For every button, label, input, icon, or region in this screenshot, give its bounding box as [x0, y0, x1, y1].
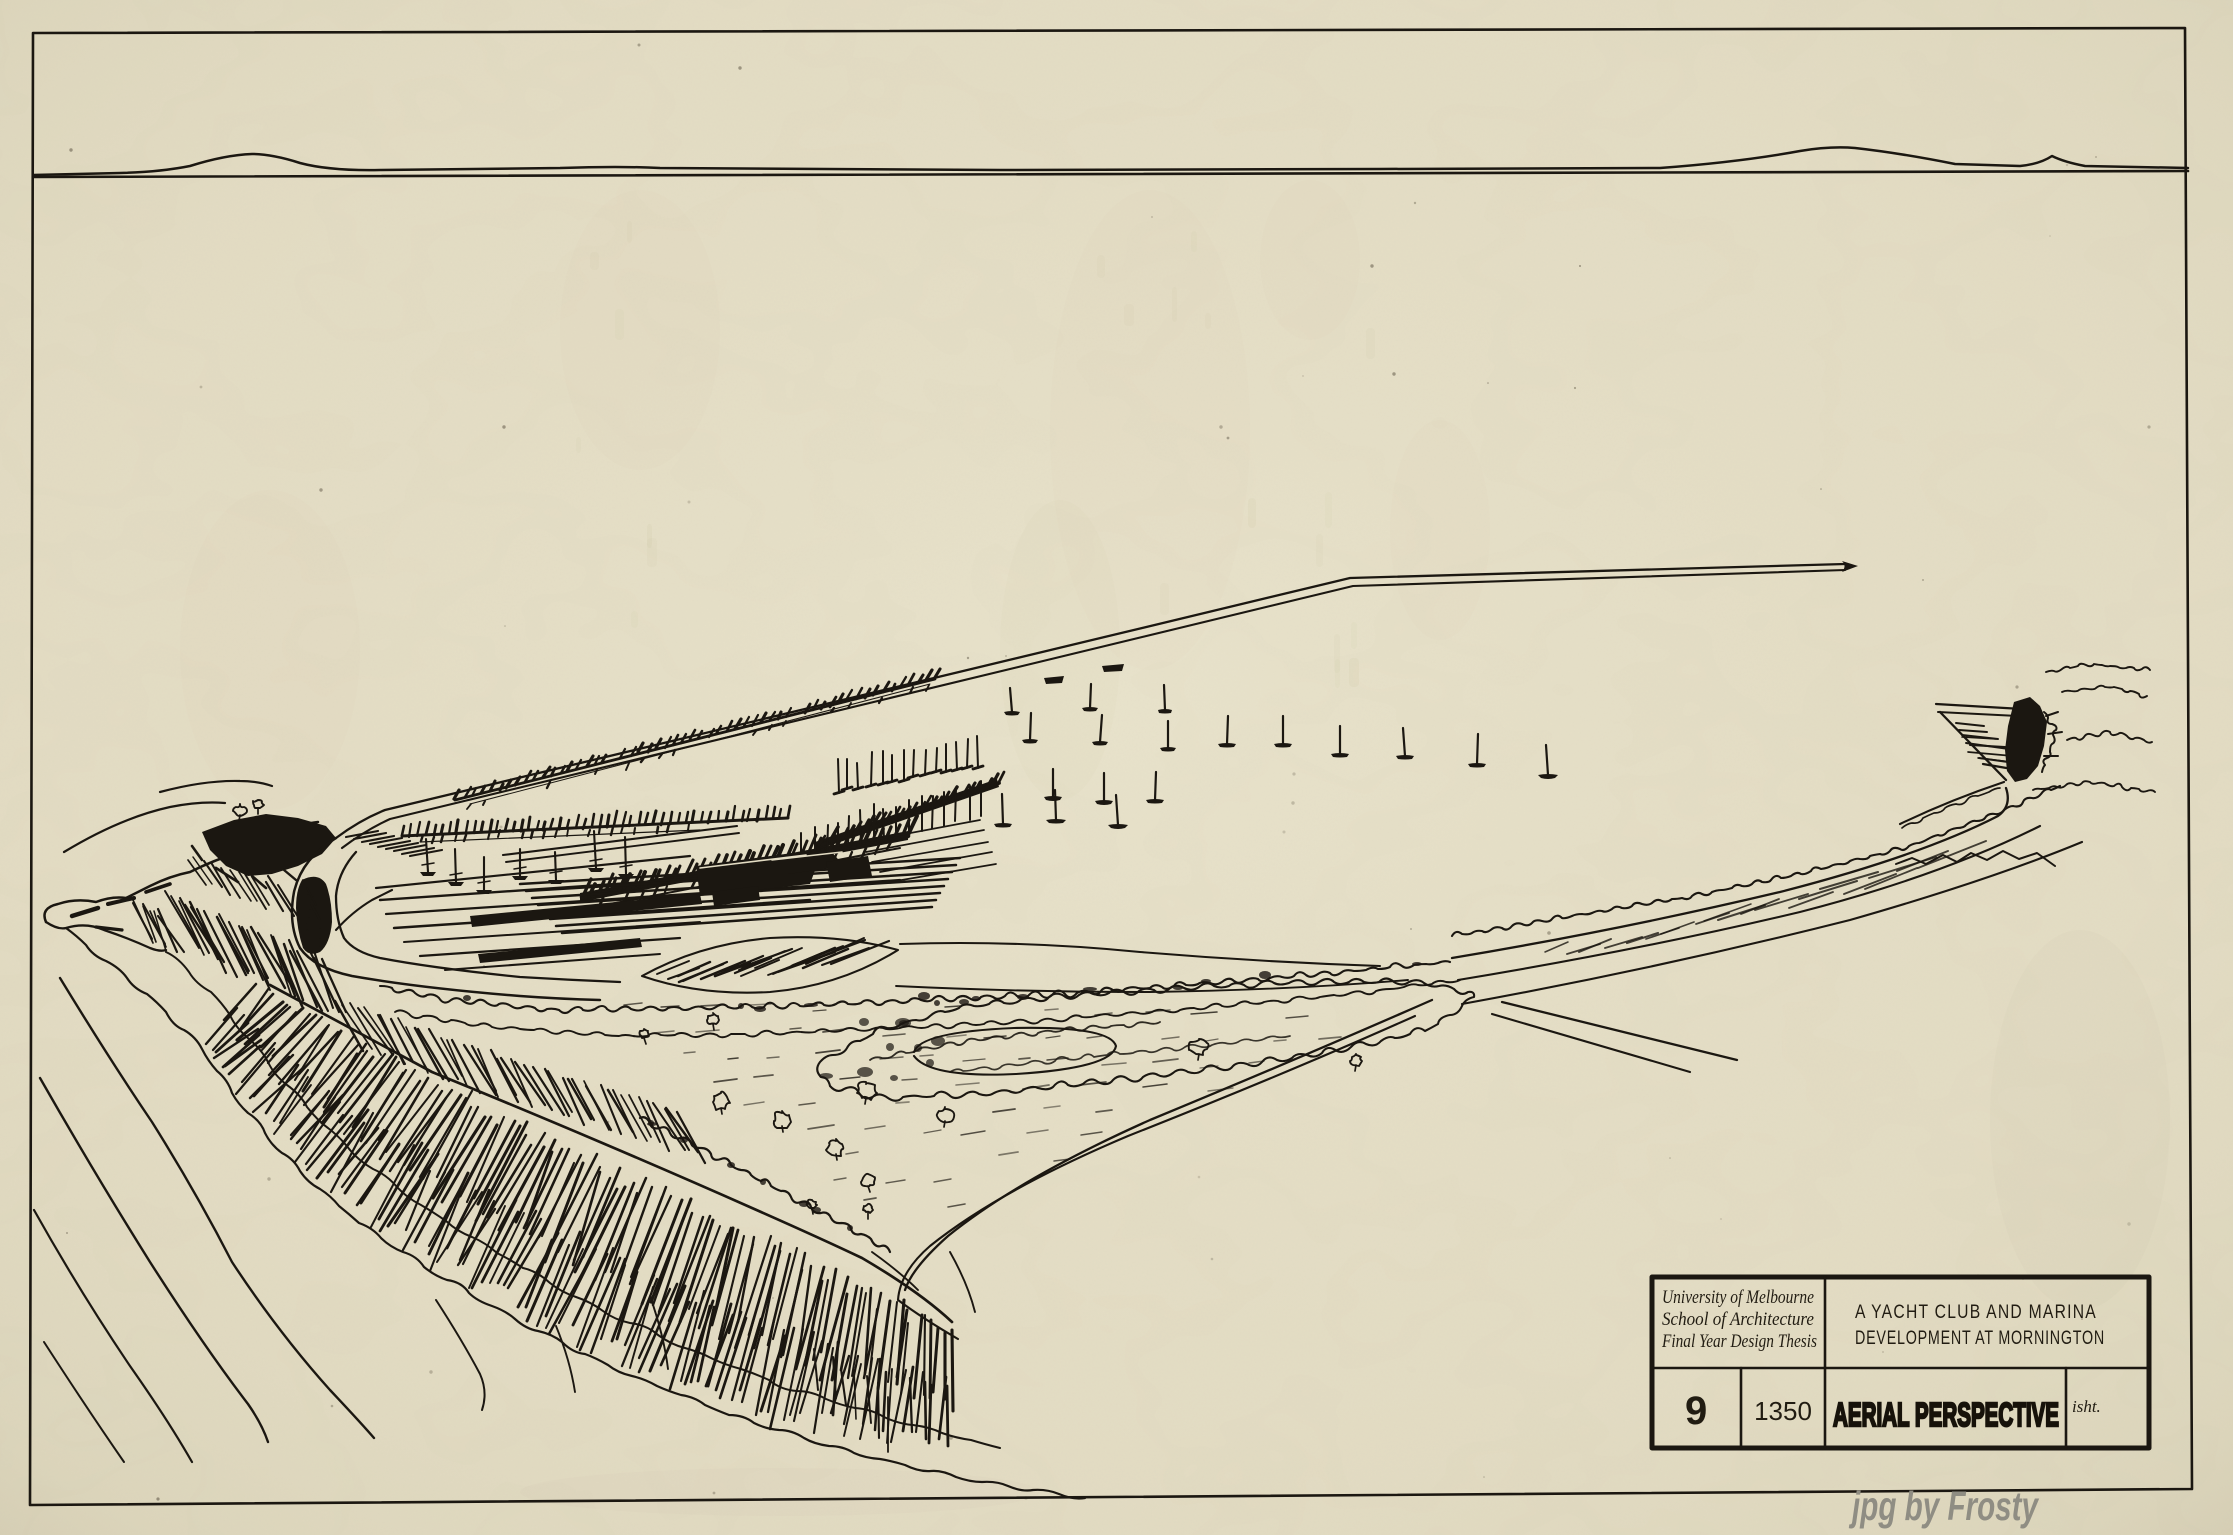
svg-text:1350: 1350	[1754, 1396, 1812, 1426]
svg-text:University of Melbourne: University of Melbourne	[1662, 1287, 1814, 1308]
svg-text:DEVELOPMENT AT MORNINGTON: DEVELOPMENT AT MORNINGTON	[1855, 1328, 2105, 1349]
svg-text:isht.: isht.	[2072, 1397, 2101, 1416]
svg-text:AERIAL PERSPECTIVE: AERIAL PERSPECTIVE	[1833, 1396, 2059, 1433]
svg-text:Final Year Design Thesis: Final Year Design Thesis	[1661, 1331, 1817, 1352]
svg-text:9: 9	[1685, 1389, 1707, 1433]
svg-text:jpg by Frosty: jpg by Frosty	[1848, 1483, 2039, 1529]
svg-text:School of Architecture: School of Architecture	[1662, 1309, 1814, 1330]
svg-text:A YACHT CLUB AND MARINA: A YACHT CLUB AND MARINA	[1855, 1302, 2097, 1323]
